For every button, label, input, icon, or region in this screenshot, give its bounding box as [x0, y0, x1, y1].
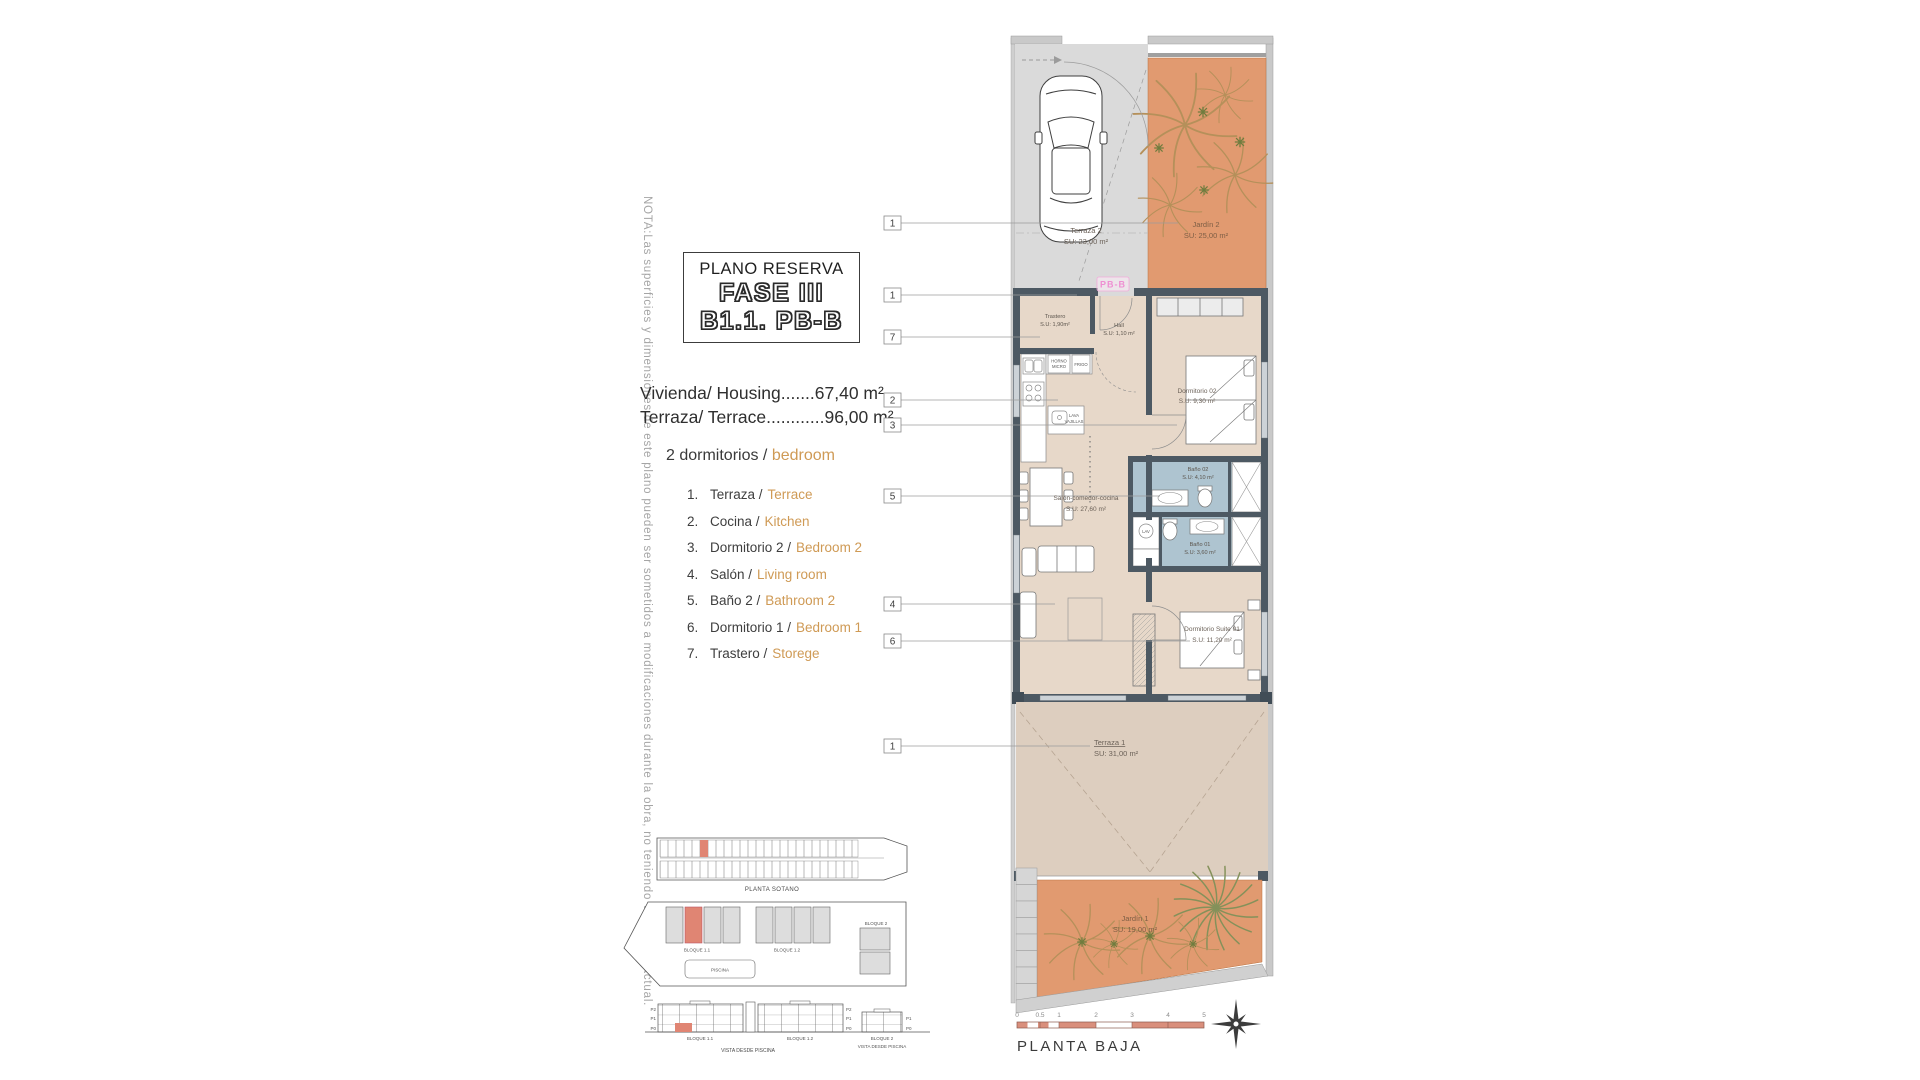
- hall-area-label: S.U: 1,10 m²: [1103, 331, 1135, 337]
- callout-1: 1: [890, 219, 896, 230]
- trastero-area-label: S.U: 1,90m²: [1040, 322, 1070, 328]
- frigo-label: FRIGO: [1074, 362, 1088, 367]
- jardin2-area-label: SU: 25,00 m²: [1184, 231, 1229, 240]
- micro-label: MICRO: [1052, 364, 1067, 369]
- highlighted-parking-stall: [700, 840, 708, 857]
- bano1-area-label: S.U: 3,60 m²: [1184, 550, 1216, 556]
- scale-tick-1: 1: [1057, 1012, 1061, 1019]
- site-diagram-bloque2-elevation: P1 P0 BLOQUE 2 VISTA DESDE PISCINA: [858, 1009, 912, 1049]
- dishwasher-label-2: VAJILLAS: [1065, 419, 1084, 424]
- callout-1c: 1: [890, 742, 896, 753]
- basement-caption: PLANTA SOTANO: [745, 887, 799, 893]
- elev-bloque11-label: BLOQUE 1.1: [687, 1036, 714, 1041]
- floor-p2-right: P2: [846, 1007, 852, 1012]
- suite-area-label: S.U: 11,20 m²: [1192, 637, 1232, 644]
- floor-p1-right: P1: [846, 1016, 852, 1021]
- callout-4: 4: [890, 600, 896, 611]
- car-icon: [1035, 76, 1107, 242]
- terraza2-area-label: SU: 23,00 m²: [1064, 237, 1109, 246]
- scale-tick-3: 3: [1130, 1012, 1134, 1019]
- salon-area-label: S.U: 27,60 m²: [1066, 506, 1107, 513]
- bloque2-label: BLOQUE 2: [865, 921, 888, 926]
- trastero-name: Trastero: [1045, 314, 1066, 320]
- jardin1-name: Jardín 1: [1121, 914, 1148, 923]
- scale-tick-4: 4: [1166, 1012, 1170, 1019]
- scale-tick-0: 0: [1015, 1012, 1019, 1019]
- highlighted-elevation-unit: [675, 1023, 692, 1032]
- washer-label: LAV: [1142, 529, 1150, 534]
- plan-graphics: 1 1 7 2 3 5 4 6 1 PB-B Terraza 2 SU: 23,…: [0, 0, 1920, 1080]
- jardin1-area-label: SU: 19,00 m²: [1113, 925, 1158, 934]
- jardin2-name: Jardín 2: [1192, 220, 1219, 229]
- callout-2: 2: [890, 396, 896, 407]
- jardin2-area: [1134, 53, 1273, 290]
- dormitorio2-name: Dormitorio 02: [1177, 388, 1216, 395]
- scale-tick-5: 5: [1202, 1012, 1206, 1019]
- terraza1-area: [1016, 702, 1268, 876]
- site-diagram-basement: PLANTA SOTANO: [657, 838, 907, 893]
- dormitorio2-area-label: S.U: 9,30 m²: [1179, 398, 1216, 405]
- terraza1-name: Terraza 1: [1094, 738, 1125, 747]
- plano-reserva-sheet: NOTA:Las superficies y dimensiones de es…: [0, 0, 1920, 1080]
- b2-floor-p0: P0: [906, 1026, 912, 1031]
- callout-1b: 1: [890, 291, 896, 302]
- terraza2-name: Terraza 2: [1070, 226, 1101, 235]
- scale-bar: 0 0.5 1 2 3 4 5: [1015, 1012, 1206, 1028]
- b2-floor-p1: P1: [906, 1016, 912, 1021]
- floor-p1-left: P1: [650, 1016, 656, 1021]
- bano1-name: Baño 01: [1190, 542, 1211, 548]
- dishwasher-label-1: LAVA: [1069, 413, 1079, 418]
- bloque11-label: BLOQUE 1.1: [684, 948, 711, 953]
- scale-tick-05: 0.5: [1035, 1012, 1044, 1019]
- elev-bloque12-label: BLOQUE 1.2: [787, 1036, 814, 1041]
- b2-elev-label: BLOQUE 2: [871, 1036, 894, 1041]
- floor-caption: PLANTA BAJA: [1017, 1038, 1143, 1055]
- callout-boxes: 1 1 7 2 3 5 4 6 1: [884, 216, 901, 753]
- floor-p2-left: P2: [650, 1007, 656, 1012]
- highlighted-unit: [685, 907, 702, 943]
- scale-tick-2: 2: [1094, 1012, 1098, 1019]
- bano2-name: Baño 02: [1188, 467, 1209, 473]
- vista-caption: VISTA DESDE PISCINA: [721, 1048, 775, 1054]
- callout-3: 3: [890, 421, 896, 432]
- callout-7: 7: [890, 333, 896, 344]
- hall-name: Hall: [1114, 323, 1124, 329]
- bloque12-label: BLOQUE 1.2: [774, 948, 801, 953]
- callout-5: 5: [890, 492, 896, 503]
- compass-icon: [1211, 999, 1261, 1049]
- piscina-label: PISCINA: [711, 968, 729, 973]
- salon-name: Salón-comedor-cocina: [1053, 495, 1118, 502]
- b2-vista-caption: VISTA DESDE PISCINA: [858, 1044, 906, 1049]
- horno-label: HORNO: [1051, 359, 1067, 364]
- bano2-area-label: S.U: 4,10 m²: [1182, 475, 1214, 481]
- pillar: [1258, 871, 1268, 881]
- floor-p0-right: P0: [846, 1026, 852, 1031]
- suite-name: Dormitorio Suite 01: [1184, 626, 1240, 633]
- unit-tag-label: PB-B: [1100, 280, 1126, 290]
- callout-6: 6: [890, 637, 896, 648]
- site-diagram-plan: PISCINA BLOQUE 1.1 BLOQUE 1.2 BLOQUE 2: [624, 902, 906, 986]
- unit-tag: PB-B: [1097, 277, 1129, 291]
- floor-p0-left: P0: [650, 1026, 656, 1031]
- terraza1-area-label: SU: 31,00 m²: [1094, 749, 1139, 758]
- stairs: [1016, 868, 1037, 1000]
